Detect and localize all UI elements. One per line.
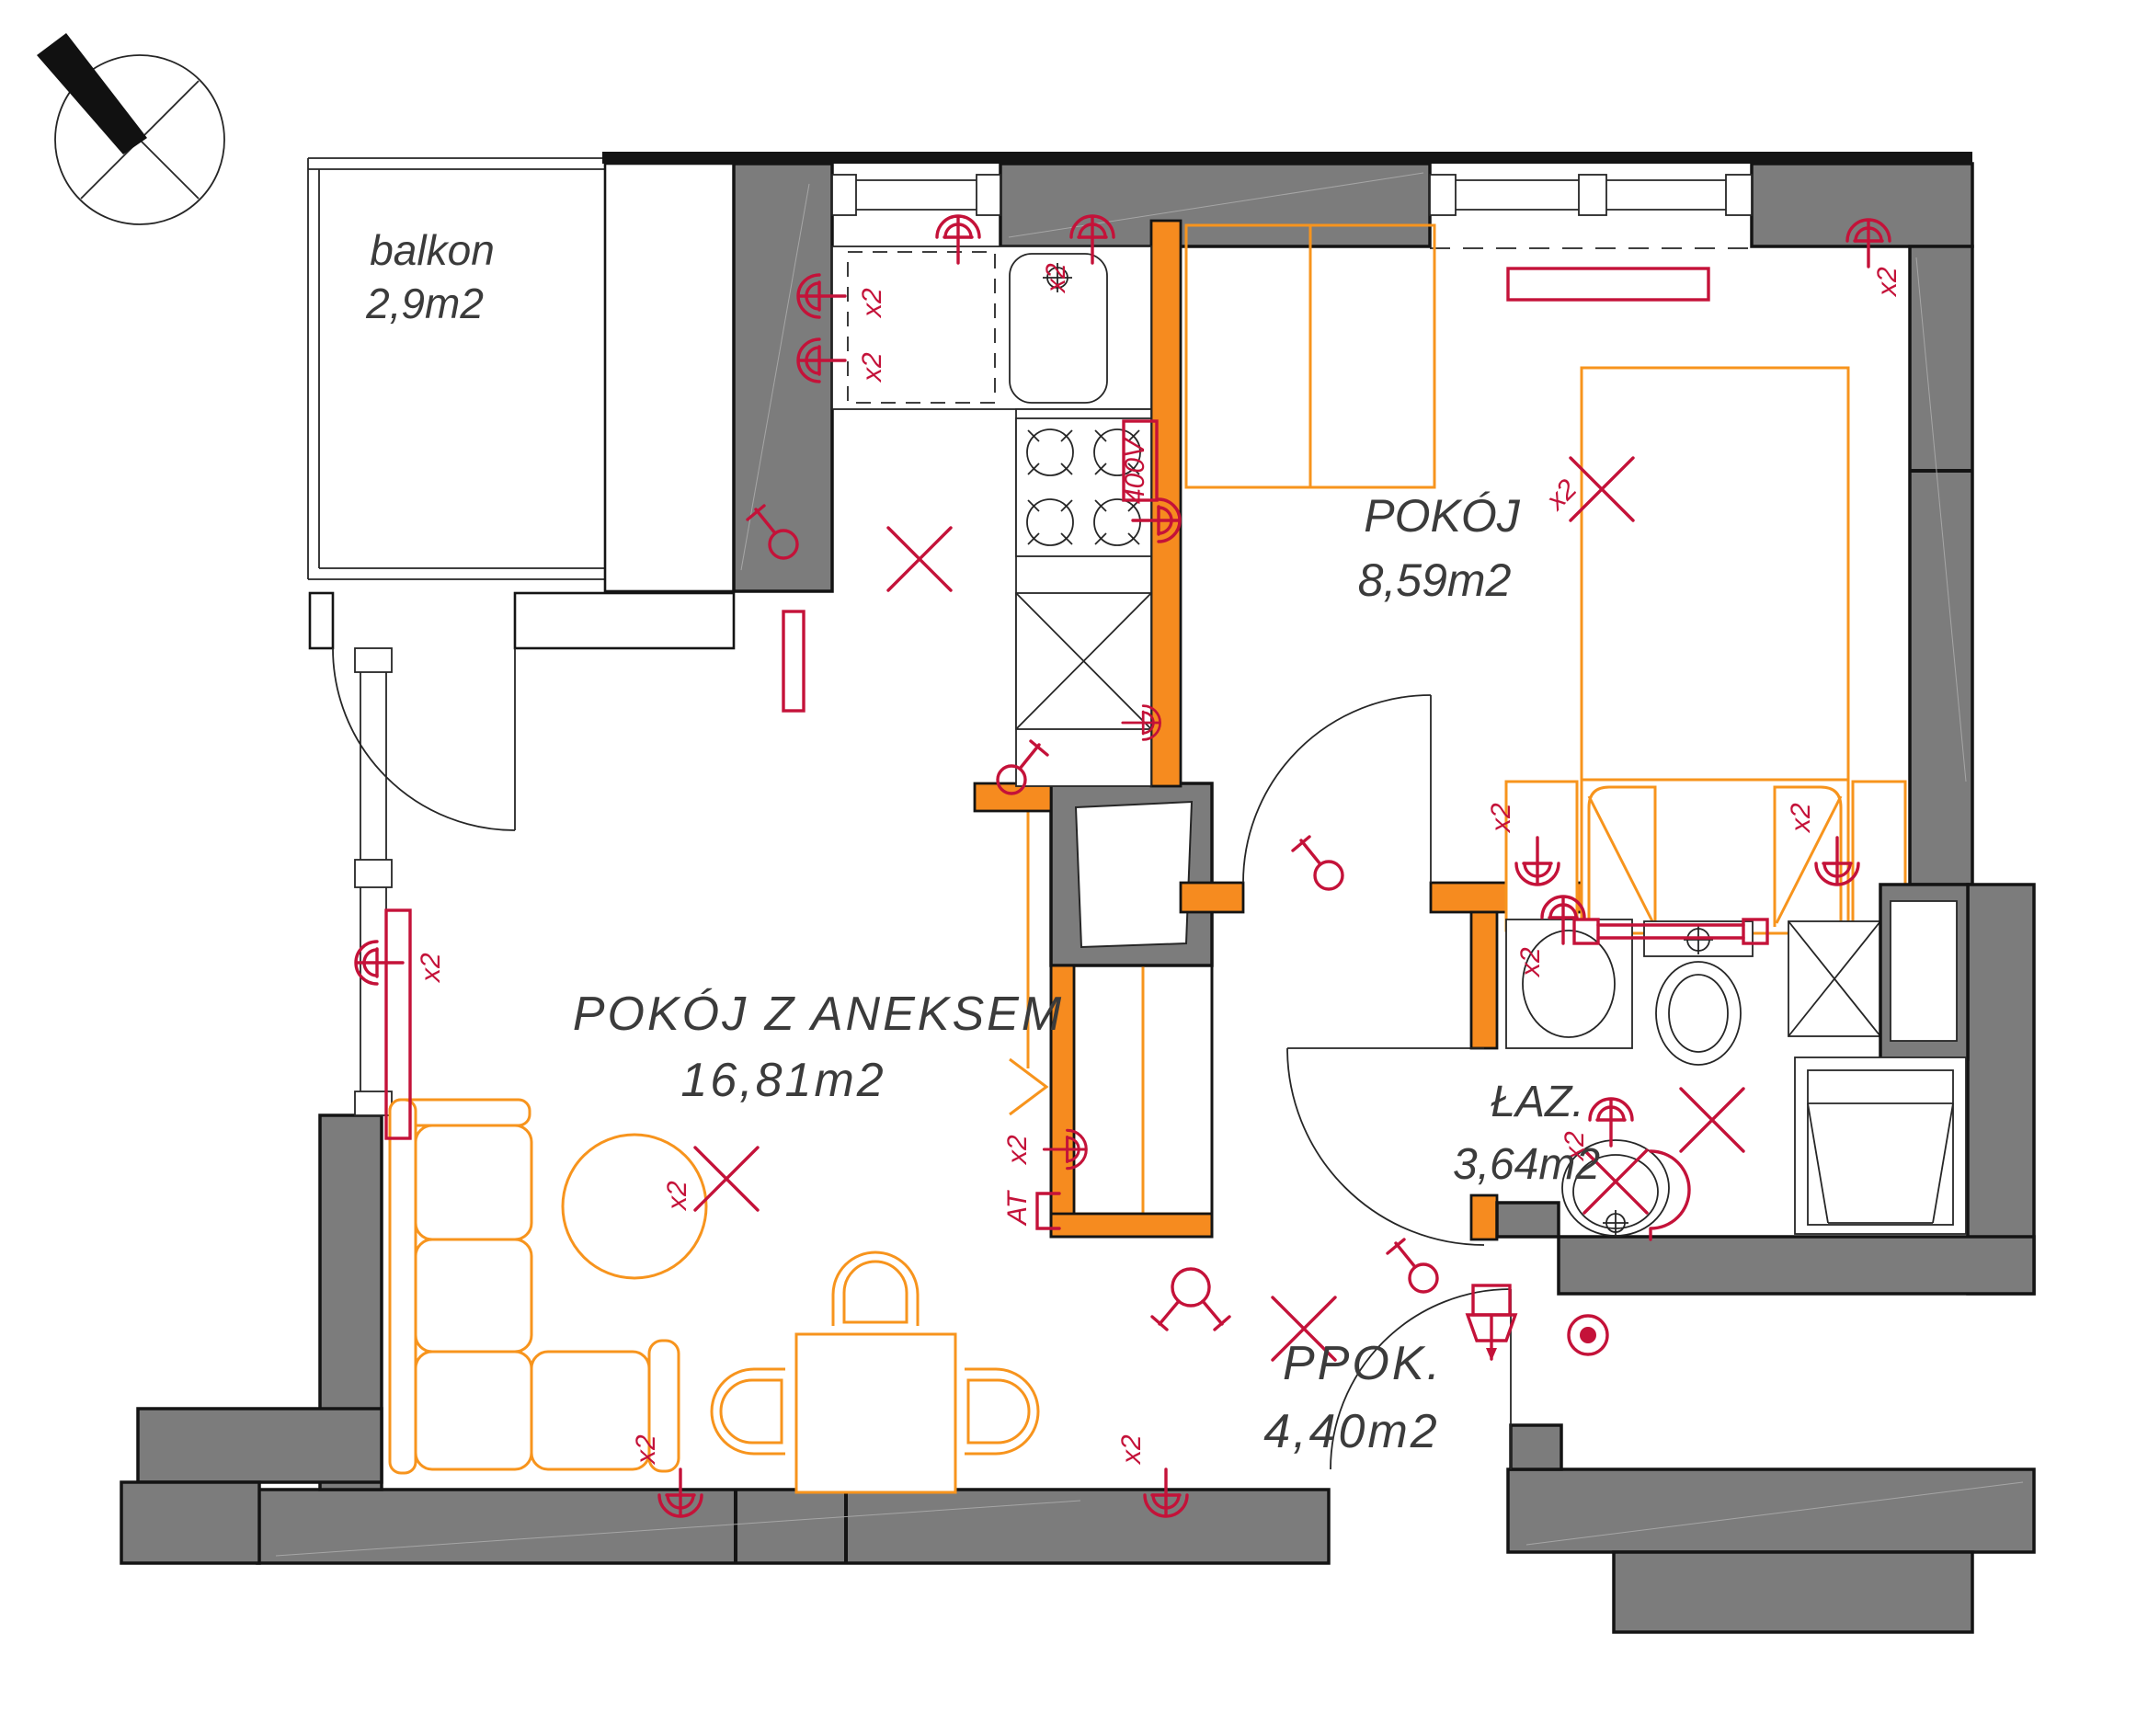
toilet <box>1644 921 1753 1065</box>
radiator-bedroom <box>1508 268 1708 300</box>
room-label-bathroom: ŁAZ. <box>1491 1078 1583 1126</box>
socket-label: x2 <box>416 953 446 984</box>
lamp-icon <box>695 1148 758 1210</box>
room-label-hall: PPOK. <box>1283 1337 1443 1390</box>
doorbell-icon <box>1468 1285 1515 1361</box>
socket-label: x2 <box>1872 267 1902 298</box>
socket-label: x2 <box>631 1434 661 1466</box>
radiator-entry <box>783 611 804 711</box>
socket-label: x2 <box>1002 1135 1033 1166</box>
socket-400v-label: 400V <box>1120 437 1150 504</box>
room-label-living: POKÓJ Z ANEKSEM <box>573 988 1064 1041</box>
socket-label: x2 <box>1486 803 1516 834</box>
fridge-crossed-box <box>1016 593 1151 729</box>
door-bedroom <box>1243 695 1431 883</box>
dining-chair-right <box>965 1369 1038 1454</box>
socket-label: x2 <box>1116 1434 1147 1466</box>
room-area-bedroom: 8,59m2 <box>1358 554 1512 606</box>
lamp-label: x2 <box>662 1181 692 1212</box>
floor-plan-svg: balkon 2,9m2 <box>0 0 2148 1736</box>
window-bedroom <box>1430 175 1752 248</box>
lamp-label: x2 <box>1539 474 1582 517</box>
lamp-icon <box>888 528 951 590</box>
floor-plan-page: balkon 2,9m2 <box>0 0 2148 1736</box>
wardrobe-connector <box>1010 809 1046 1114</box>
switch-icon <box>1388 1239 1437 1292</box>
room-label-bedroom: POKÓJ <box>1364 490 1520 542</box>
room-area-bathroom: 3,64m2 <box>1453 1140 1600 1189</box>
vent-shaft-bath <box>1880 885 1968 1059</box>
room-area-hall: 4,40m2 <box>1263 1405 1439 1458</box>
dining-chair-top <box>833 1252 918 1326</box>
nightstand-left <box>1506 782 1577 931</box>
junction-box-icon <box>1569 1316 1607 1354</box>
socket-icon <box>356 942 403 984</box>
dining-chair-left <box>712 1369 785 1454</box>
wardrobe-bedroom <box>1186 225 1434 487</box>
wardrobe-hall <box>1051 965 1212 1237</box>
socket-label: x2 <box>1041 263 1071 294</box>
socket-at-label: AT <box>1002 1189 1033 1227</box>
socket-label: x2 <box>857 288 887 319</box>
socket-label: x2 <box>1515 947 1546 978</box>
sofa <box>390 1100 679 1473</box>
room-area-living: 16,81m2 <box>680 1054 885 1107</box>
bathtub <box>1795 1057 1966 1234</box>
lamp-icon <box>1681 1089 1743 1151</box>
window-kitchen <box>832 175 1000 215</box>
socket-label: x2 <box>857 352 887 383</box>
vent-shaft-central <box>1051 783 1212 965</box>
vent-crossed-box-bath <box>1788 921 1880 1036</box>
socket-label: x2 <box>1786 803 1816 834</box>
socket-icon <box>1590 1099 1632 1146</box>
sprinkler-icon <box>1152 1269 1229 1330</box>
room-area-balcony: 2,9m2 <box>365 280 484 327</box>
dining-set <box>712 1252 1038 1492</box>
bed <box>1582 368 1848 933</box>
dining-table <box>796 1334 955 1492</box>
room-label-balcony: balkon <box>370 226 495 274</box>
north-arrow-icon <box>37 33 224 224</box>
switch-icon <box>1293 837 1342 889</box>
